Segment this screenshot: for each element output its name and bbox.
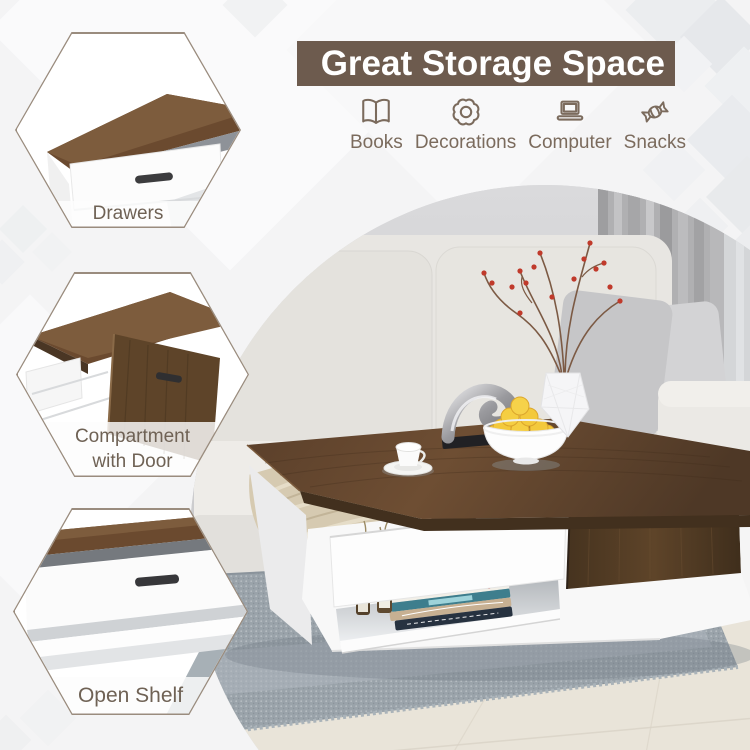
open-book-icon xyxy=(359,95,393,129)
flower-decoration-icon xyxy=(449,95,483,129)
hexagon-photo-open-shelf: Open Shelf xyxy=(15,510,247,714)
laptop-icon xyxy=(553,95,587,129)
coffee-table xyxy=(225,418,750,681)
feature-snacks: Snacks xyxy=(624,95,686,154)
callout-label-compartment: Compartment with Door xyxy=(18,422,248,476)
wrapped-candy-icon xyxy=(638,95,672,129)
feature-computer: Computer xyxy=(528,95,611,154)
callout-open-shelf: Open Shelf xyxy=(13,508,248,715)
feature-label: Computer xyxy=(528,132,611,154)
feature-books: Books xyxy=(350,95,403,154)
feature-label: Snacks xyxy=(624,132,686,154)
product-infographic: Drawers Compartment with Door xyxy=(0,0,750,750)
drawer-detail-scene xyxy=(17,34,240,227)
hexagon-photo-drawers: Drawers xyxy=(17,34,240,227)
callout-drawers: Drawers xyxy=(15,32,241,228)
storage-feature-list: Books Decorations Computer xyxy=(350,95,686,154)
feature-decorations: Decorations xyxy=(415,95,516,154)
callout-label-open-shelf: Open Shelf xyxy=(15,677,247,714)
title-banner: Great Storage Space xyxy=(297,41,675,86)
background-diamond xyxy=(32,232,72,272)
living-room-photo xyxy=(190,185,750,750)
callout-label-drawers: Drawers xyxy=(17,201,240,227)
hexagon-photo-compartment: Compartment with Door xyxy=(18,274,248,476)
feature-label: Decorations xyxy=(415,132,516,154)
callout-label-line: with Door xyxy=(18,449,248,474)
feature-label: Books xyxy=(350,132,403,154)
living-room-scene xyxy=(190,185,750,750)
callout-compartment: Compartment with Door xyxy=(16,272,249,477)
